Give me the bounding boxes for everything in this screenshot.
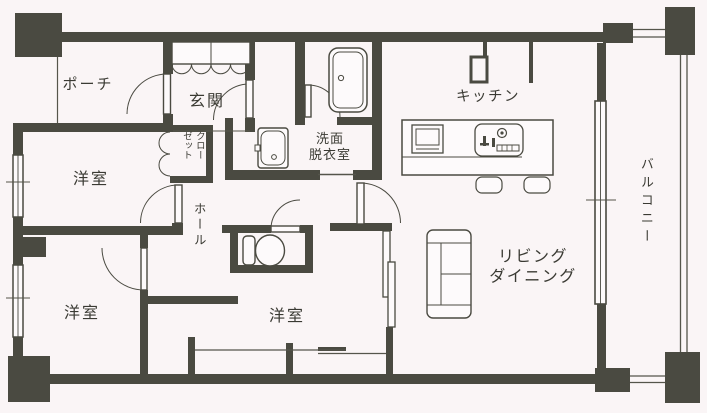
kitchen-duct-pillar bbox=[471, 57, 487, 82]
front-door bbox=[127, 74, 171, 114]
floor-plan: ポーチ 玄関 洋室 クロー ゼット ホール 洗面 脱衣室 キッチン リビング ダ… bbox=[0, 0, 707, 413]
room-label-hall: ホール bbox=[190, 202, 205, 249]
washbasin bbox=[255, 128, 288, 168]
bedroom-living-sliding-doors bbox=[383, 231, 395, 327]
toilet-door bbox=[271, 200, 300, 232]
room-label-entrance: 玄関 bbox=[189, 92, 225, 112]
stool bbox=[524, 177, 550, 193]
room-label-balcony: バルコニー bbox=[638, 157, 654, 247]
room-label-bedroom-upper: 洋室 bbox=[73, 170, 109, 190]
room-label-closet: クロー ゼット bbox=[179, 131, 205, 160]
window-bedroom-upper-left bbox=[6, 155, 30, 217]
sofa bbox=[427, 230, 471, 318]
room-label-kitchen: キッチン bbox=[456, 89, 520, 107]
pillar-top-right bbox=[665, 7, 695, 55]
closet-bifold-doors bbox=[159, 132, 170, 176]
room-label-porch: ポーチ bbox=[62, 76, 113, 94]
bedroom-lower-left-door bbox=[102, 248, 147, 290]
window-living-balcony bbox=[586, 101, 616, 304]
room-label-bedroom-lower-left: 洋室 bbox=[64, 304, 100, 324]
wall-pillar-notch bbox=[22, 237, 46, 257]
shoe-cabinet bbox=[172, 42, 250, 74]
window-bedroom-lower-left bbox=[6, 265, 30, 337]
bedroom-upper-door bbox=[141, 185, 183, 223]
pillar-bottom-right bbox=[665, 352, 700, 403]
bathtub bbox=[329, 48, 367, 112]
floor-plan-drawing bbox=[0, 0, 707, 413]
pillar-top-left bbox=[15, 13, 62, 57]
kitchen-sink bbox=[412, 125, 443, 153]
toilet bbox=[243, 235, 285, 266]
room-label-living-dining: リビング ダイニング bbox=[489, 247, 577, 286]
cooktop bbox=[475, 124, 523, 156]
stool bbox=[476, 177, 502, 193]
living-door bbox=[357, 183, 401, 224]
kitchen-counter bbox=[402, 120, 553, 193]
room-label-washroom: 洗面 脱衣室 bbox=[309, 131, 351, 163]
room-label-bedroom-lower-center: 洋室 bbox=[269, 307, 305, 327]
